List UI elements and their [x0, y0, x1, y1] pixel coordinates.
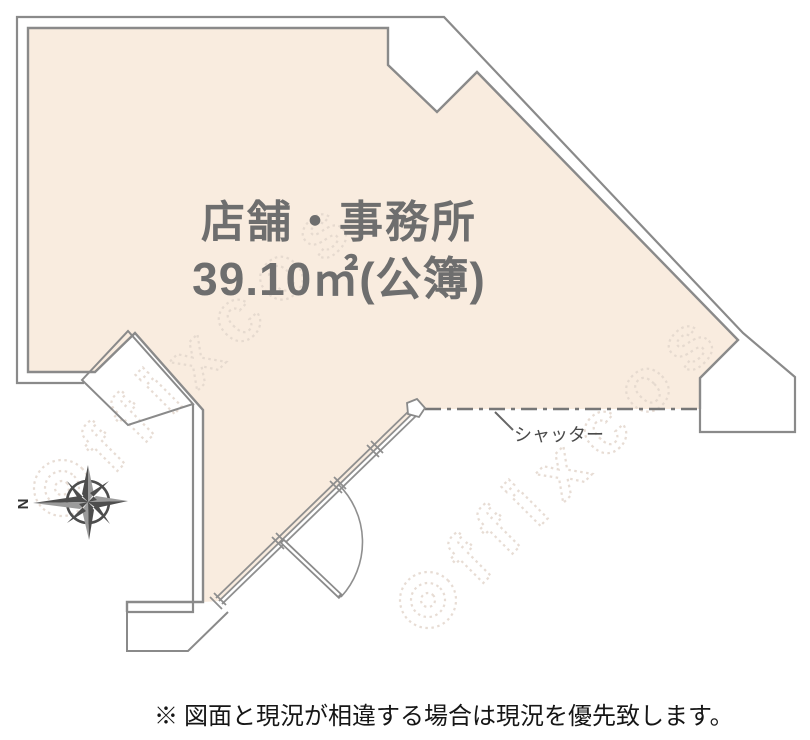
compass-rose: N	[15, 465, 128, 540]
watermark-ring-icon	[418, 590, 438, 610]
room-area-label: 39.10㎡(公簿)	[192, 243, 486, 309]
door-leaf-core	[283, 542, 339, 595]
shutter-leader-line	[495, 412, 513, 430]
floorplan-canvas: ffixcos ffixcos	[0, 0, 810, 740]
shutter-label: シャッター	[514, 421, 604, 447]
watermark-ring-icon	[404, 576, 452, 624]
floorplan-drawing: ffixcos ffixcos	[0, 0, 810, 740]
watermark-ring-icon	[388, 560, 467, 639]
compass-north-label: N	[15, 499, 32, 510]
room-name-label: 店舗・事務所	[201, 186, 477, 250]
disclaimer-text: ※ 図面と現況が相違する場合は現況を優先致します。	[154, 696, 734, 731]
room-floor-area	[28, 28, 738, 602]
entrance-step-outline	[127, 612, 228, 651]
door-swing-arc	[338, 484, 362, 597]
